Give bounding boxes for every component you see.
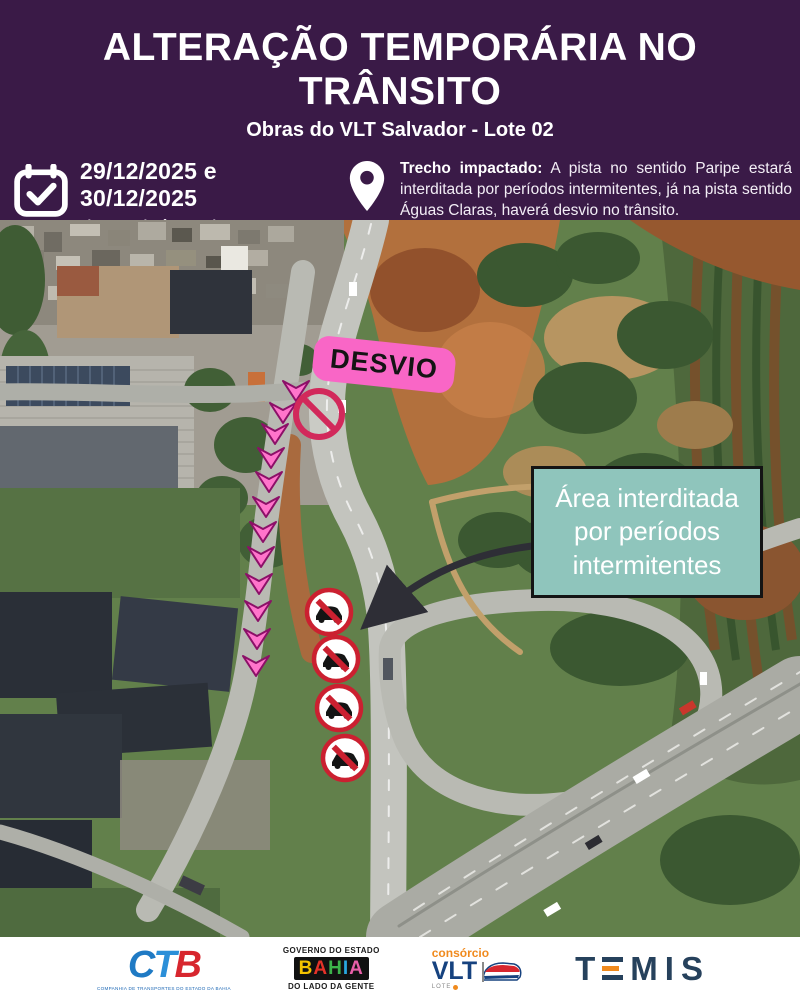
bahia-wordmark: BAHIA	[294, 957, 369, 980]
temis-letter: M	[630, 952, 658, 985]
bahia-top-text: GOVERNO DO ESTADO	[283, 946, 380, 955]
vlt-wordmark: VLT	[432, 959, 477, 984]
temis-e-bars-icon	[602, 957, 623, 980]
vlt-lote-text: LOTE	[432, 984, 459, 990]
location-pin-icon	[348, 160, 386, 212]
no-cars-sign-icon	[314, 637, 358, 681]
ctb-letter: T	[153, 944, 174, 986]
footer-logo-bar: CTB COMPANHIA DE TRANSPORTES DO ESTADO D…	[0, 937, 800, 1000]
ctb-letter: C	[128, 944, 153, 986]
page-subtitle: Obras do VLT Salvador - Lote 02	[0, 119, 800, 142]
train-icon	[481, 960, 523, 984]
bahia-government-logo: GOVERNO DO ESTADO BAHIA DO LADO DA GENTE	[283, 946, 380, 991]
impact-lead: Trecho impactado:	[400, 160, 542, 177]
large-warehouse	[0, 356, 194, 488]
temis-letter: I	[665, 952, 674, 985]
no-cars-sign-icon	[323, 736, 367, 780]
no-cars-sign-icon	[307, 590, 351, 634]
bahia-letter: B	[299, 958, 314, 979]
bahia-bottom-text: DO LADO DA GENTE	[288, 982, 375, 991]
traffic-notice-poster: ALTERAÇÃO TEMPORÁRIA NO TRÂNSITO Obras d…	[0, 0, 800, 1000]
ctb-letter: B	[175, 944, 200, 986]
no-cars-sign-icon	[317, 686, 361, 730]
page-title: ALTERAÇÃO TEMPORÁRIA NO TRÂNSITO	[0, 0, 800, 114]
temis-logo: T M I S	[575, 952, 703, 985]
temis-letter: S	[681, 952, 703, 985]
closure-callout: Área interditada por períodos intermiten…	[531, 466, 763, 598]
lote-dot-icon	[453, 985, 458, 990]
no-entry-sign-icon	[296, 391, 342, 437]
dates-text: 29/12/2025 e 30/12/2025	[80, 158, 332, 212]
bahia-letter: A	[313, 958, 328, 979]
bahia-letter: H	[328, 958, 343, 979]
ctb-logo: CTB COMPANHIA DE TRANSPORTES DO ESTADO D…	[97, 946, 231, 991]
calendar-check-icon	[14, 164, 68, 218]
satellite-map: DESVIO Área interditada por períodos int…	[0, 220, 800, 937]
dark-roof-building	[170, 270, 252, 334]
vlt-consortium-logo: consórcio VLT LOTE	[432, 947, 523, 990]
ctb-wordmark: CTB	[128, 946, 200, 984]
temis-letter: T	[575, 952, 595, 985]
bahia-letter: A	[349, 958, 364, 979]
ctb-caption: COMPANHIA DE TRANSPORTES DO ESTADO DA BA…	[97, 986, 231, 991]
